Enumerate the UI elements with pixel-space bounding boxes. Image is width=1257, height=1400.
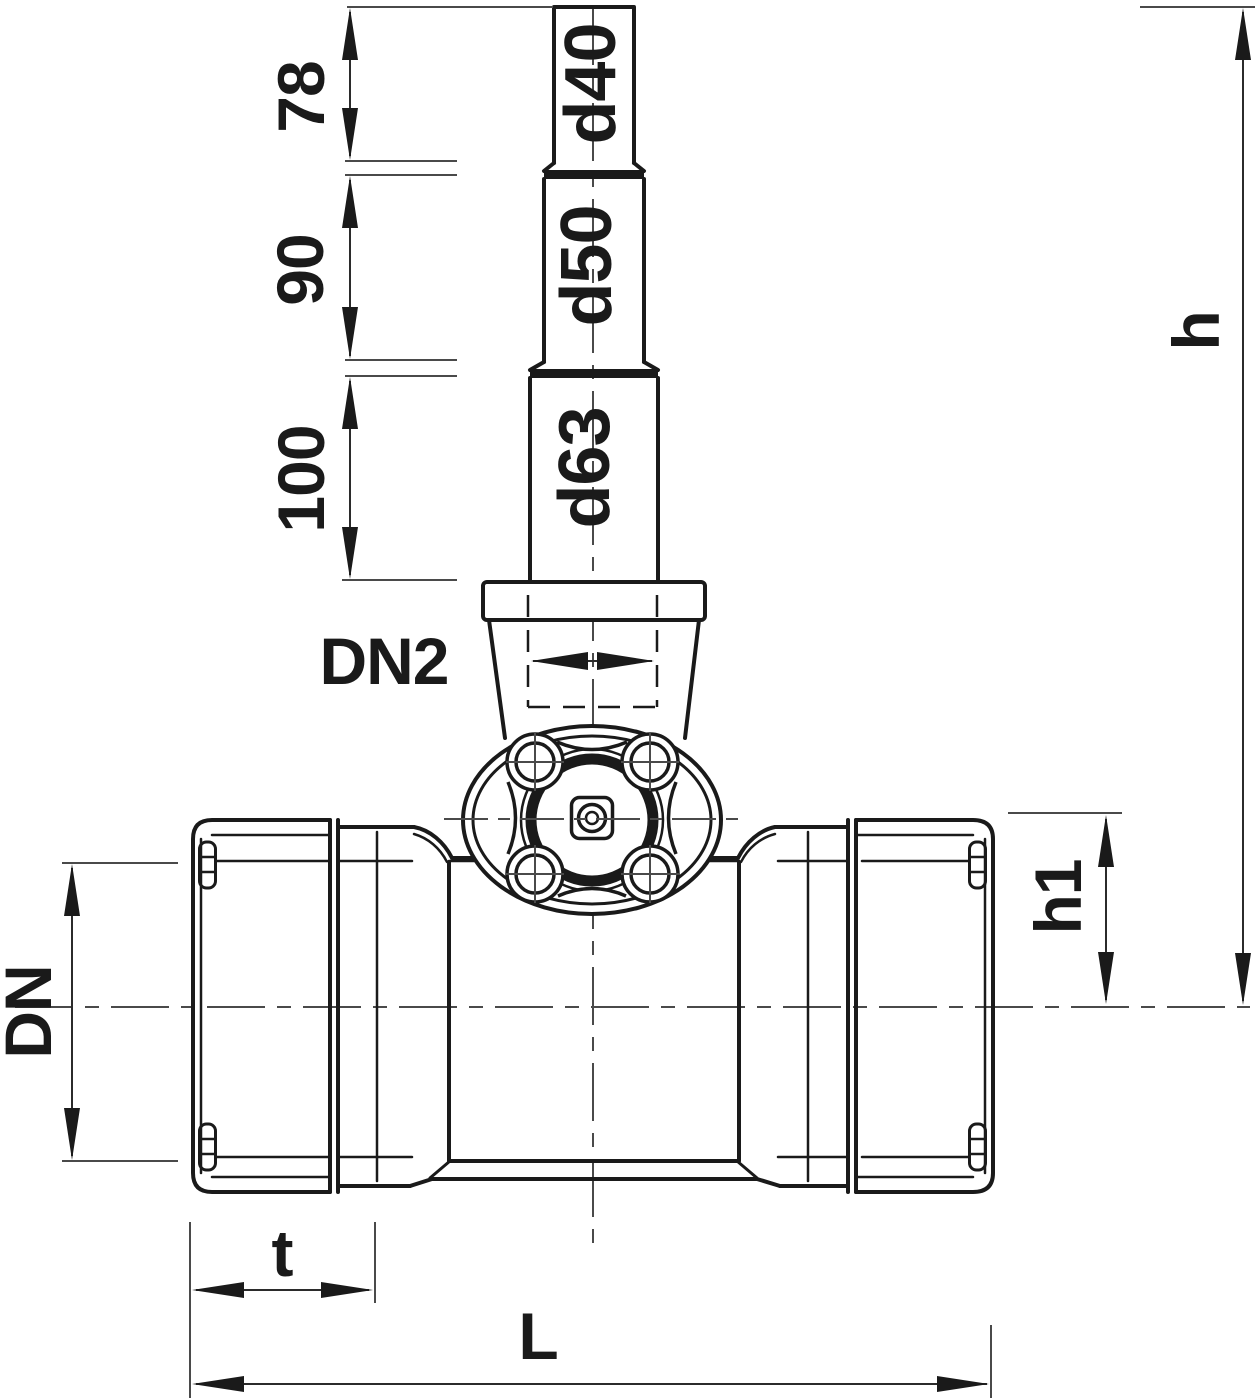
arrow-left-icon: [192, 1376, 244, 1392]
arrow-left-icon: [531, 652, 588, 670]
arrow-up-icon: [342, 176, 358, 228]
branch-flange: [444, 726, 748, 914]
dim-h1-label: h1: [1021, 859, 1095, 934]
pipe-d40-label: d40: [551, 23, 631, 144]
left-shoulder-inner: [414, 834, 447, 862]
ext-lines-mid1: [345, 161, 457, 175]
dim-L: L: [192, 1299, 991, 1398]
arrow-right-icon: [321, 1282, 373, 1298]
dim-h: h: [1140, 7, 1255, 1005]
left-latch-ticks: [201, 857, 214, 1154]
pipe-transition-band-1: [544, 170, 644, 179]
dim-dn-label: DN: [0, 965, 65, 1058]
ext-lines-mid2: [345, 360, 457, 376]
dn-extension-lines: [62, 863, 178, 1161]
dim-90-label: 90: [263, 234, 337, 305]
dim-t: t: [190, 1216, 375, 1398]
pipe-d50-label: d50: [547, 205, 627, 326]
arrow-up-icon: [1098, 815, 1114, 867]
pipe-transition-band-2: [530, 369, 658, 378]
dim-h-label: h: [1159, 311, 1233, 350]
arrow-right-icon: [937, 1376, 989, 1392]
dim-dn2-label: DN2: [319, 624, 448, 698]
arrow-down-icon: [342, 527, 358, 579]
valve-dimension-drawing: d40 d50 d63 78 90 100: [0, 0, 1257, 1400]
dim-100-label: 100: [264, 425, 338, 532]
dim-DN: DN: [0, 863, 178, 1161]
right-latch-top: [970, 842, 986, 888]
arrow-right-icon: [597, 652, 654, 670]
arrow-down-icon: [1098, 952, 1114, 1004]
arrow-down-icon: [342, 307, 358, 359]
arrow-up-icon: [342, 8, 358, 60]
technical-drawing-page: d40 d50 d63 78 90 100: [0, 0, 1257, 1400]
arrow-up-icon: [1235, 8, 1251, 60]
arrow-down-icon: [64, 1108, 80, 1160]
arrow-up-icon: [342, 377, 358, 429]
arrow-up-icon: [64, 864, 80, 916]
right-latch-bottom: [970, 1124, 986, 1170]
pipe-d63-label: d63: [545, 407, 625, 528]
dim-78-label: 78: [264, 61, 338, 132]
arrow-down-icon: [342, 108, 358, 160]
arrow-left-icon: [192, 1282, 244, 1298]
dim-78-90-100: 78 90 100: [263, 7, 553, 580]
dim-t-label: t: [272, 1216, 294, 1290]
dim-l-label: L: [518, 1299, 557, 1373]
pipe-d40-chamfer: [544, 163, 644, 171]
right-latch-ticks: [971, 857, 984, 1154]
arrow-down-icon: [1235, 953, 1251, 1005]
bonnet-top-plate: [483, 582, 705, 620]
bonnet: DN2: [319, 582, 705, 738]
right-cap-band: [848, 820, 856, 1192]
dim-h1: h1: [1008, 813, 1122, 1004]
center-bottom-outer: [410, 1179, 780, 1186]
spindle: d40 d50 d63: [530, 7, 658, 582]
